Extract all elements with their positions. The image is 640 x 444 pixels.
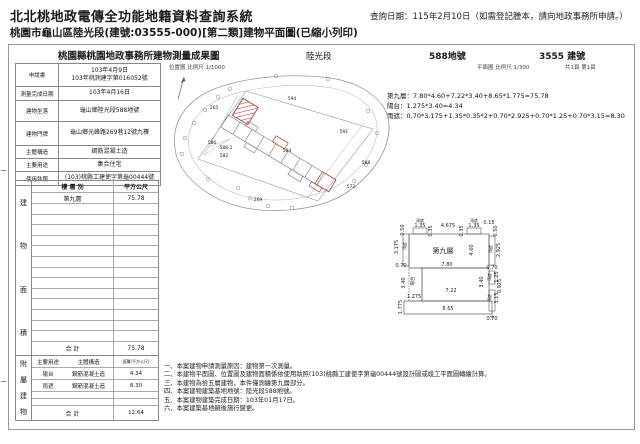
side-label-char: 物 (20, 241, 27, 251)
floor-empty-row (32, 299, 158, 310)
floor-empty-row (32, 278, 158, 289)
info-row: 主要用途集合住宅 (16, 159, 160, 172)
side-label-char: 建 (20, 198, 27, 208)
annex-total-value: 12.64 (114, 406, 158, 420)
annex-row: 雨遮鋼筋混凝土造8.30 (32, 380, 158, 392)
info-label: 建物門牌 (16, 122, 59, 145)
annex-area: 4.34 (114, 368, 158, 379)
dimension-labels-text: 0.70 (486, 265, 497, 271)
floor-empty-row (32, 268, 158, 279)
annex-structure: 鋼筋混凝土造 (64, 380, 114, 391)
page-count: 共1頁 第1頁 (565, 63, 596, 71)
boundary-point (216, 95, 220, 99)
floor-empty-row (32, 310, 158, 321)
floor-empty-row (32, 215, 158, 226)
info-label: 測量完成日期 (16, 87, 59, 100)
annex-area: 8.30 (114, 380, 158, 391)
building-info-table: 申請書103年4月9日103年桃測建字第016052號測量完成日期103年4月1… (15, 63, 161, 186)
boundary-point (352, 179, 356, 183)
dimension-labels-text: 陽台 (409, 276, 416, 285)
building-footprint (218, 96, 348, 197)
dimension-labels-text: 3.40 (479, 276, 485, 287)
annex-use: 陽台 (32, 368, 64, 379)
dimension-labels-text: 7.80 (441, 262, 452, 268)
floor-empty-row (32, 331, 158, 342)
info-value: 103年4月16日 (59, 87, 160, 100)
info-label: 主體構造 (16, 146, 59, 158)
col-floor: 樓 層 別 (32, 181, 114, 192)
parcel-number-labels-text: 584 (283, 148, 292, 154)
dimension-labels-text: 1.275 (407, 294, 421, 300)
info-value: 鋼筋混凝土造 (59, 146, 160, 158)
dimension-labels-text: 第九層 (433, 246, 454, 255)
parcel-number-labels: 265594591586588-1582584588572269 (208, 96, 371, 203)
dimension-labels-text: 0.50 (493, 225, 499, 236)
note-line: 六、本案建築基地嗣後施行變更。 (164, 405, 636, 413)
notes-list: 一、本案建物申請測量原因：建物第一次測量。二、本建物平面圖、位置圖及建物面積係依… (164, 363, 636, 413)
side-label-char: 建 (20, 391, 27, 401)
ninth-floor-plan: 雨遮1.350.354.675雨遮1.350.350.150.500.503.1… (391, 216, 566, 348)
floor-empty-row (32, 246, 158, 257)
page: 北北桃地政電傳全功能地籍資料查詢系統 查詢日期：115年2月10日（如需登記謄本… (0, 0, 640, 444)
side-label-char: 附 (20, 359, 27, 369)
boundary-point (183, 136, 187, 140)
dimension-labels-text: 4.60 (469, 244, 475, 255)
parcel-number-labels-text: 586 (208, 140, 217, 146)
info-row: 建物門牌龜山鄉光峰路269巷12號九樓 (16, 122, 160, 146)
floor-plan-scale: 平面圖 比例尺 1/300 (477, 63, 529, 71)
dimension-labels-text: 2.925 (496, 243, 502, 257)
calc-balcony: 陽台：1.275*3.40=4.34 (387, 101, 625, 111)
floor-table-header: 樓 層 別 平方公尺 (32, 181, 158, 193)
floor-area-side-label: 建物面積 (16, 181, 32, 355)
info-value: 龜山鄉光峰路269巷12號九樓 (59, 122, 160, 145)
survey-result-document: 桃園縣桃園地政事務所建物測量成果圖 陸光段 588地號 3555 建號 位置圖 … (8, 44, 635, 430)
annex-table-header: 主要用途 主體構造 面積(平方公尺) (32, 356, 158, 368)
note-line: 五、本案建物建築完成日期：103年01月17日。 (164, 397, 636, 405)
annex-building-table: 附屬建物 主要用途 主體構造 面積(平方公尺) 陽台鋼筋混凝土造4.34雨遮鋼筋… (15, 355, 159, 421)
boundary-point (290, 206, 294, 210)
annex-side-label: 附屬建物 (16, 356, 32, 420)
info-value: 集合住宅 (59, 159, 160, 171)
col-annex-area: 面積(平方公尺) (122, 359, 149, 365)
floor-empty-row (32, 321, 158, 332)
floor-area: 75.78 (114, 193, 158, 203)
note-line: 三、本建物為拾五層建物，本件僅測繪第九層部分。 (164, 380, 636, 388)
col-area: 平方公尺 (114, 181, 158, 192)
parcel-number-labels-text: 591 (340, 129, 349, 135)
info-value: 龜山鄉陸光段588地號 (59, 101, 160, 121)
dimension-labels-text: 1.35 (414, 223, 425, 229)
floor-total-value: 75.78 (114, 342, 158, 355)
info-row: 申請書103年4月9日103年桃測建字第016052號 (16, 64, 160, 87)
info-value: 103年4月9日103年桃測建字第016052號 (59, 64, 160, 86)
floor-area-table: 建物面積 樓 層 別 平方公尺 第九層75.78 合 計 75.78 (15, 180, 159, 356)
dimension-labels-text: 1.35 (468, 223, 479, 229)
parcel-number-labels-text: 594 (288, 96, 297, 102)
dimension-labels-text: 1.775 (398, 300, 404, 314)
info-label: 申請書 (16, 64, 59, 86)
subject-unit-hatched (232, 98, 258, 124)
side-label-char: 積 (20, 328, 27, 338)
dimension-labels-text: 8.65 (442, 306, 453, 312)
info-label: 建物坐落 (16, 101, 59, 121)
dimension-labels-text: 3.40 (401, 277, 407, 288)
dimension-labels-text: 0.70 (486, 316, 497, 322)
dimension-labels-text: 7.22 (445, 288, 456, 294)
dimension-labels-text: 0.35 (459, 225, 465, 236)
system-title: 北北桃地政電傳全功能地籍資料查詢系統 (10, 6, 253, 25)
location-map: 265594591586588-1582584588572269 (168, 69, 394, 219)
parcel-number-labels-text: 582 (220, 153, 229, 159)
road-outer-boundary (174, 76, 389, 211)
floor-total-label: 合 計 (32, 342, 114, 355)
boundary-point (274, 74, 278, 78)
parcel-number-labels-text: 588-1 (219, 145, 232, 151)
col-annex-structure: 主體構造 (64, 356, 114, 367)
area-calculations: 第九層：7.80*4.60+7.22*3.40+8.65*1.775=75.78… (387, 91, 625, 121)
annex-structure: 鋼筋混凝土造 (64, 368, 114, 379)
parcel-number-labels-text: 572 (347, 184, 356, 190)
document-subtitle: 桃園市龜山區陸光段(建號:03555-000)[第二類]建物平面圖(已縮小列印) (10, 25, 358, 40)
dimension-labels-text: 0.15 (483, 220, 494, 226)
rain-canopy-outlines (403, 228, 495, 318)
dimension-labels-text: 0.50 (400, 224, 406, 235)
fold-mark (1, 381, 6, 382)
floor-empty-row (32, 236, 158, 247)
info-label: 主要用途 (16, 159, 59, 171)
floor-empty-row (32, 225, 158, 236)
col-annex-use: 主要用途 (32, 356, 64, 367)
dimension-labels-text: 3.15 (494, 292, 500, 303)
dimension-labels: 雨遮1.350.354.675雨遮1.350.350.150.500.503.1… (394, 218, 503, 322)
note-line: 四、本案建物建築基地地號：陸光段588地號。 (164, 388, 636, 396)
north-arrow (178, 77, 186, 99)
dimension-labels-text: 3.175 (394, 240, 400, 254)
annex-empty-row (32, 392, 158, 399)
dimension-labels-text: 0.70 (395, 263, 406, 269)
calc-floor: 第九層：7.80*4.60+7.22*3.40+8.65*1.775=75.78 (387, 91, 625, 101)
dimension-labels-text: 雨遮 (402, 242, 407, 250)
dimension-labels-text: 雨遮 (487, 294, 492, 302)
floor-empty-row (32, 257, 158, 268)
annex-total-row: 合 計 12.64 (32, 406, 158, 420)
floor-empty-row (32, 204, 158, 215)
dimension-labels-text: 雨遮 (488, 245, 493, 253)
floor-name: 第九層 (32, 193, 114, 203)
note-line: 二、本建物平面圖、位置圖及建物面積係依使用執照(103)桃縣工建使字第龜0044… (164, 371, 636, 379)
dimension-labels-text: 雨遮 (487, 273, 492, 281)
parcel-number-labels-text: 588 (362, 160, 371, 166)
info-row: 測量完成日期103年4月16日 (16, 87, 160, 101)
side-label-char: 物 (20, 407, 27, 417)
dimension-labels-text: 0.35 (428, 225, 434, 236)
annex-empty-row (32, 399, 158, 406)
side-label-char: 面 (20, 285, 27, 295)
boundary-point (203, 108, 207, 112)
boundary-point (366, 109, 370, 113)
document-title: 桃園縣桃園地政事務所建物測量成果圖 (58, 48, 220, 62)
parcel-number-labels-text: 269 (254, 197, 263, 203)
dimension-labels-text: 4.675 (441, 223, 455, 229)
parcel-number-labels-text: 265 (210, 105, 219, 111)
info-row: 主體構造鋼筋混凝土造 (16, 146, 160, 159)
building-number: 3555 建號 (539, 49, 585, 62)
query-date: 查詢日期：115年2月10日（如需登記謄本，請向地政事務所申請。） (370, 10, 628, 22)
boundary-point (266, 204, 270, 208)
annex-use: 雨遮 (32, 380, 64, 391)
calc-canopy: 雨遮：0.70*3.175+1.35*0.35*2+0.70*2.925+0.7… (387, 111, 625, 121)
dimension-labels-text: 0.925 (497, 279, 503, 293)
floor-row: 第九層75.78 (32, 193, 158, 204)
land-section: 陸光段 (306, 50, 332, 62)
boundary-point (180, 152, 184, 156)
side-label-char: 屬 (20, 375, 27, 385)
floor-total-row: 合 計 75.78 (32, 342, 158, 355)
floor-empty-row (32, 289, 158, 300)
annex-total-label: 合 計 (32, 406, 114, 420)
boundary-point (236, 186, 240, 190)
parcel-number: 588地號 (429, 49, 466, 62)
info-row: 建物坐落龜山鄉陸光段588地號 (16, 101, 160, 122)
annex-row: 陽台鋼筋混凝土造4.34 (32, 368, 158, 380)
fold-mark (1, 170, 6, 171)
boundary-point (228, 87, 232, 91)
